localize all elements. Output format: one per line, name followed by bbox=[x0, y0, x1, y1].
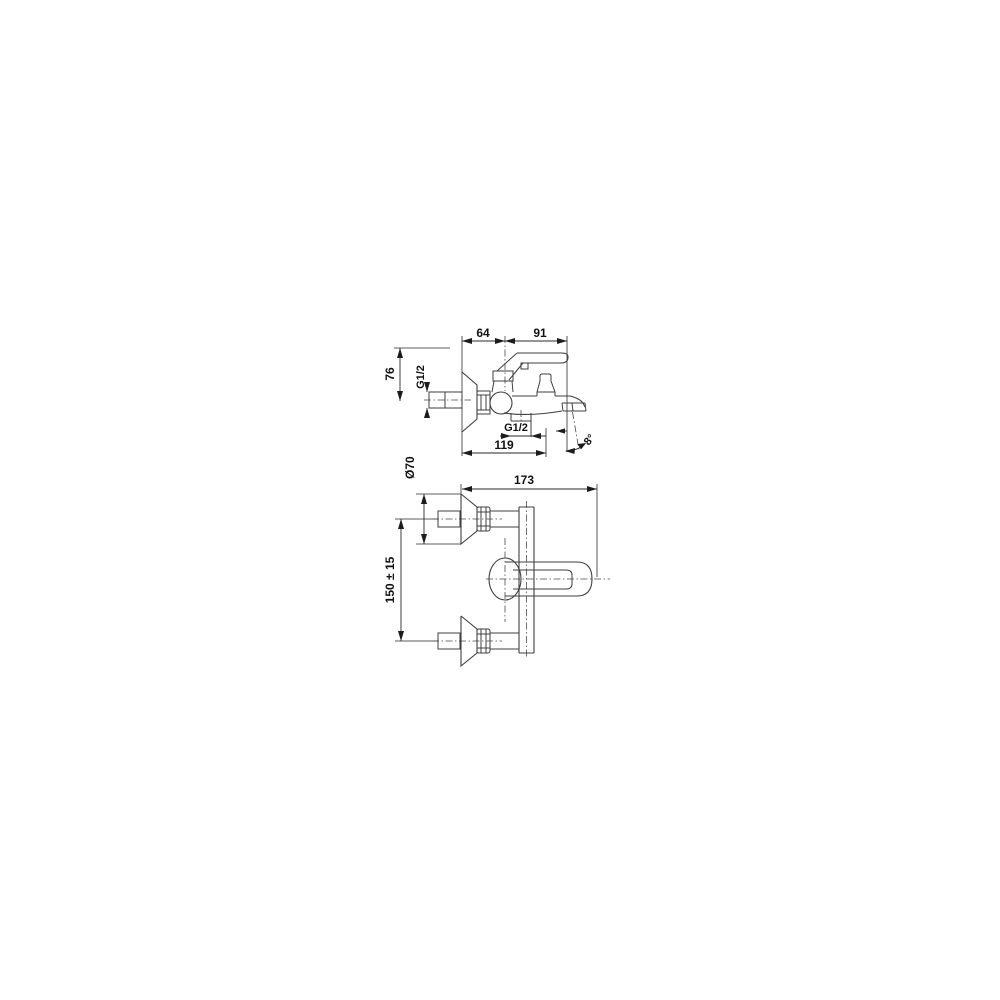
plan-view: 173 Ø70 150 ± 15 bbox=[383, 456, 610, 666]
inlet-thread-label: G1/2 bbox=[415, 365, 427, 389]
top-wall-connection bbox=[432, 494, 519, 544]
spout-side bbox=[504, 396, 586, 414]
cartridge-sides bbox=[492, 381, 513, 392]
dim-label-64: 64 bbox=[476, 326, 490, 340]
escutcheon-side bbox=[462, 372, 477, 432]
spout-angle-annotation: 8° bbox=[556, 412, 598, 454]
dim-label-70: Ø70 bbox=[403, 456, 417, 479]
side-view: 64 91 76 G1/2 bbox=[383, 326, 598, 457]
faucet-dimension-drawing: 64 91 76 G1/2 bbox=[0, 0, 1000, 1000]
handle-lever-side bbox=[497, 353, 568, 380]
outlet-arrow-right bbox=[531, 433, 541, 439]
body-circle bbox=[490, 392, 512, 414]
diverter-knob bbox=[537, 374, 555, 396]
dim-label-173: 173 bbox=[514, 473, 534, 487]
dim-label-119: 119 bbox=[494, 438, 514, 452]
outlet-thread-label: G1/2 bbox=[504, 422, 528, 434]
bottom-eccentric-union bbox=[490, 633, 519, 649]
aerator bbox=[562, 403, 586, 411]
dim-label-76: 76 bbox=[383, 367, 397, 381]
dim-label-150: 150 ± 15 bbox=[383, 556, 397, 603]
union-nut-side bbox=[477, 391, 490, 414]
handle-lever-plan bbox=[513, 570, 572, 589]
top-eccentric-union bbox=[490, 511, 519, 527]
spout-angle-label: 8° bbox=[582, 432, 598, 448]
dim-label-91: 91 bbox=[533, 326, 547, 340]
technical-drawing-page: 64 91 76 G1/2 bbox=[0, 0, 1000, 1000]
bottom-wall-connection bbox=[432, 616, 519, 666]
